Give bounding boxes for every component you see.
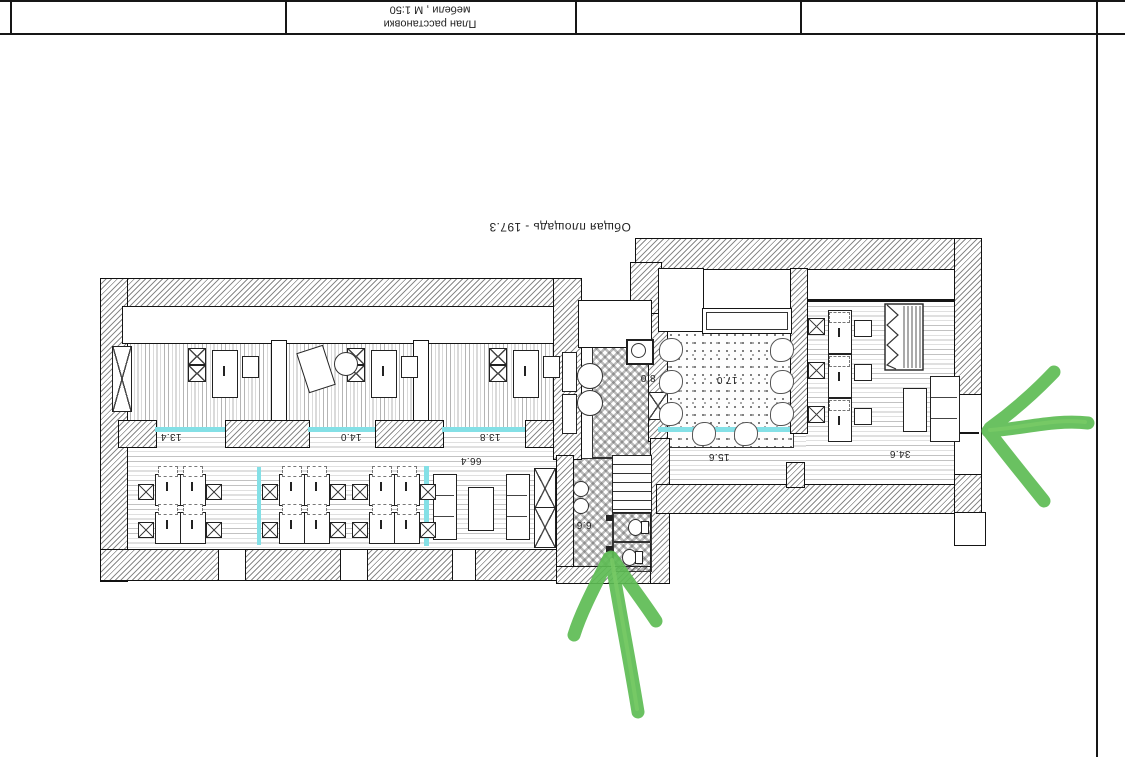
office-1-cabinet-2 (188, 365, 206, 382)
office-4-sofa-cushion-2 (931, 418, 957, 419)
desk-cluster-1-row-2-chair-1-mark (166, 520, 168, 529)
desk-cluster-1-row-1-chair-1-mark (166, 482, 168, 491)
desk-cluster-2-row-1-pedestal-right (330, 484, 346, 500)
drawing-sheet: { "title_block": { "title_line1": "План … (0, 0, 1125, 757)
desk-cluster-3-row-1-chair-2-mark (405, 482, 407, 491)
office-2-area-label: 14.0 (329, 431, 373, 442)
entrance-arrow-right-barb-down (990, 433, 1044, 501)
desk-cluster-1-row-2-pedestal-right (206, 522, 222, 538)
washbasin-2 (573, 498, 589, 514)
entrance-arrow-right-barb-up (990, 372, 1054, 428)
office-4-sofa (930, 376, 960, 442)
desk-divider-1 (257, 467, 261, 545)
desk-cluster-2-row-1-pedestal-left (262, 484, 278, 500)
bean-bag-chair-3 (659, 402, 683, 426)
sofa-left-cushion (434, 495, 454, 496)
title-line-2: мебели , М 1:50 (300, 2, 560, 16)
office-3-area-label: 13.8 (468, 431, 512, 442)
desk-cluster-3-row-2-chair-2-mark (405, 520, 407, 529)
office-1-chair-mark (223, 366, 225, 376)
desk-cluster-2-row-1-desk-1 (279, 474, 305, 506)
soft-room-area-label: 17.0 (705, 374, 749, 385)
office-2-chair-mark (382, 366, 384, 376)
wc-door-jamb-2 (606, 546, 613, 552)
wardrobe-rack (884, 303, 924, 371)
front-pier-3 (375, 420, 444, 448)
sofa-right-cushion (507, 495, 527, 496)
lounge-wardrobe-lower (534, 507, 556, 548)
desk-cluster-1-row-1-chair-2 (183, 466, 203, 477)
office-4-workstation-2-chair-tucked (829, 356, 850, 367)
south-wall-right-wing (656, 484, 982, 514)
desk-cluster-2-row-1-chair-2 (307, 466, 327, 477)
office-1-cabinet-1 (188, 348, 206, 365)
bean-bag-chair-8 (734, 422, 758, 446)
wc-door-jamb-1 (606, 515, 613, 521)
desk-cluster-1-row-1-pedestal-right (206, 484, 222, 500)
office-4-workstation-3-pedestal (808, 406, 825, 423)
hall-area-label: 15.6 (697, 451, 741, 462)
office-3-chair-mark (524, 366, 526, 376)
sofa-left-cushion-2 (434, 516, 454, 517)
east-wall-upper (954, 238, 982, 396)
desk-cluster-3-row-2-desk-2 (394, 512, 420, 544)
office-1-desk (212, 350, 238, 398)
desk-cluster-3-row-1-chair-2 (397, 466, 417, 477)
desk-cluster-2-row-1-desk-2 (304, 474, 330, 506)
desk-cluster-1-row-2-desk-2 (180, 512, 206, 544)
desk-cluster-2-row-1-chair-1-mark (290, 482, 292, 491)
desk-cluster-2-row-2-desk-1 (279, 512, 305, 544)
desk-cluster-2-row-2-pedestal-right (330, 522, 346, 538)
office-4-workstation-2-side-chair (854, 364, 872, 381)
south-window-3 (452, 549, 476, 581)
desk-cluster-3-row-1-desk-2 (394, 474, 420, 506)
desk-cluster-1-row-2-chair-2-mark (191, 520, 193, 529)
office-2-desk (371, 350, 397, 398)
lounge-sofa-right (506, 474, 530, 540)
kitchen-table-1 (577, 363, 603, 389)
kitchen-bench-1 (562, 352, 577, 392)
office-4-workstation-1-pedestal (808, 318, 825, 335)
desk-cluster-3-row-1-pedestal-left (352, 484, 368, 500)
office-3-cabinet-2 (489, 365, 507, 382)
desk-cluster-1-row-2-chair-2 (183, 504, 203, 515)
office-partition-1 (271, 340, 287, 432)
wc-area-label: 6.6 (566, 519, 602, 530)
office-4-top-line (806, 299, 958, 302)
desk-cluster-1-row-1-chair-2-mark (191, 482, 193, 491)
south-wall-left-wing (100, 549, 562, 581)
desk-cluster-3-row-2-chair-1-mark (380, 520, 382, 529)
desk-cluster-1-row-1-chair-1 (158, 466, 178, 477)
desk-cluster-1-row-1-desk-2 (180, 474, 206, 506)
office-partition-2 (413, 340, 429, 432)
desk-cluster-3-row-2-chair-1 (372, 504, 392, 515)
total-area-label: Общая площадь - 197.3 (470, 220, 650, 234)
bean-bag-chair-1 (659, 338, 683, 362)
desk-cluster-2-row-2-chair-2 (307, 504, 327, 515)
office-2-side-table (401, 356, 418, 378)
office-4-area-label: 34.6 (878, 448, 922, 459)
kitchen-bench-2 (562, 394, 577, 434)
desk-cluster-1-row-1-pedestal-left (138, 484, 154, 500)
office-4-workstation-3-side-chair (854, 408, 872, 425)
desk-cluster-1-row-1-desk-1 (155, 474, 181, 506)
desk-cluster-3-row-1-chair-1-mark (380, 482, 382, 491)
frame-titleblock-bottom-line (0, 33, 1125, 35)
office-4-coffee-table (903, 388, 927, 432)
entrance-arrow-right-shaft (988, 422, 1088, 431)
bean-bag-chair-2 (659, 370, 683, 394)
titleblock-divider-1 (285, 0, 287, 35)
office-3-desk (513, 350, 539, 398)
desk-cluster-3-row-2-pedestal-left (352, 522, 368, 538)
desk-cluster-2-row-2-chair-2-mark (315, 520, 317, 529)
desk-cluster-2-row-1-chair-1 (282, 466, 302, 477)
titleblock-title: План расстановки мебели , М 1:50 (300, 2, 560, 31)
lounge-wardrobe-upper (534, 468, 556, 509)
office-4-sofa-cushion-1 (931, 397, 957, 398)
office-4-workstation-2-chair-mark (838, 372, 840, 381)
desk-cluster-2-row-2-chair-1-mark (290, 520, 292, 529)
office-2-round-pouf (334, 352, 358, 376)
staircase (612, 455, 652, 513)
soft-room-console (702, 308, 792, 334)
toilet-2-tank (635, 551, 643, 564)
bean-bag-chair-6 (770, 402, 794, 426)
desk-cluster-3-row-1-chair-1 (372, 466, 392, 477)
office-4-workstation-3-chair-tucked (829, 400, 850, 411)
front-pier-2 (225, 420, 310, 448)
desk-cluster-2-row-2-desk-2 (304, 512, 330, 544)
south-pier (786, 462, 805, 488)
bean-bag-chair-4 (770, 338, 794, 362)
frame-top-line (0, 0, 1125, 2)
kitchen-sink-bowl (631, 343, 646, 358)
west-window (112, 346, 132, 412)
desk-cluster-3-row-1-desk-1 (369, 474, 395, 506)
toilet-1-tank (641, 521, 649, 534)
exterior-step (954, 512, 986, 546)
lounge-coffee-table (468, 487, 494, 531)
office-1-area-label: 13.4 (149, 431, 193, 442)
titleblock-divider-3 (800, 0, 802, 35)
desk-cluster-3-row-2-chair-2 (397, 504, 417, 515)
desk-cluster-1-row-2-pedestal-left (138, 522, 154, 538)
office-4-workstation-3-chair-mark (838, 416, 840, 425)
office-3-cabinet-1 (489, 348, 507, 365)
office-4-workstation-1-chair-tucked (829, 312, 850, 323)
open-space-area-label: 66.4 (449, 455, 493, 466)
office-3-side-table (543, 356, 560, 378)
south-window-1 (218, 549, 246, 581)
titleblock-divider-left (10, 0, 12, 35)
sofa-right-cushion-2 (507, 516, 527, 517)
north-niche (122, 306, 564, 344)
desk-cluster-2-row-1-chair-2-mark (315, 482, 317, 491)
soft-room-recess (658, 268, 704, 332)
office-4-workstation-2-pedestal (808, 362, 825, 379)
desk-cluster-1-row-2-chair-1 (158, 504, 178, 515)
kitchen-table-2 (577, 390, 603, 416)
office-4-workstation-1-side-chair (854, 320, 872, 337)
desk-cluster-2-row-2-chair-1 (282, 504, 302, 515)
east-wall-lower (954, 474, 982, 514)
titleblock-divider-2 (575, 0, 577, 35)
frame-right-border (1096, 0, 1098, 757)
washbasin-1 (573, 481, 589, 497)
desk-cluster-1-row-2-desk-1 (155, 512, 181, 544)
bean-bag-chair-5 (770, 370, 794, 394)
title-line-1: План расстановки (300, 16, 560, 30)
desk-cluster-3-row-2-pedestal-right (420, 522, 436, 538)
desk-cluster-3-row-2-desk-1 (369, 512, 395, 544)
desk-cluster-3-row-1-pedestal-right (420, 484, 436, 500)
soft-room-glazing (658, 427, 790, 432)
bean-bag-chair-7 (692, 422, 716, 446)
office-4-workstation-1-chair-mark (838, 328, 840, 337)
south-window-2 (340, 549, 368, 581)
desk-cluster-2-row-2-pedestal-left (262, 522, 278, 538)
north-wall-right-wing (635, 238, 982, 270)
lounge-sofa-left (433, 474, 457, 540)
office-1-side-table (242, 356, 259, 378)
